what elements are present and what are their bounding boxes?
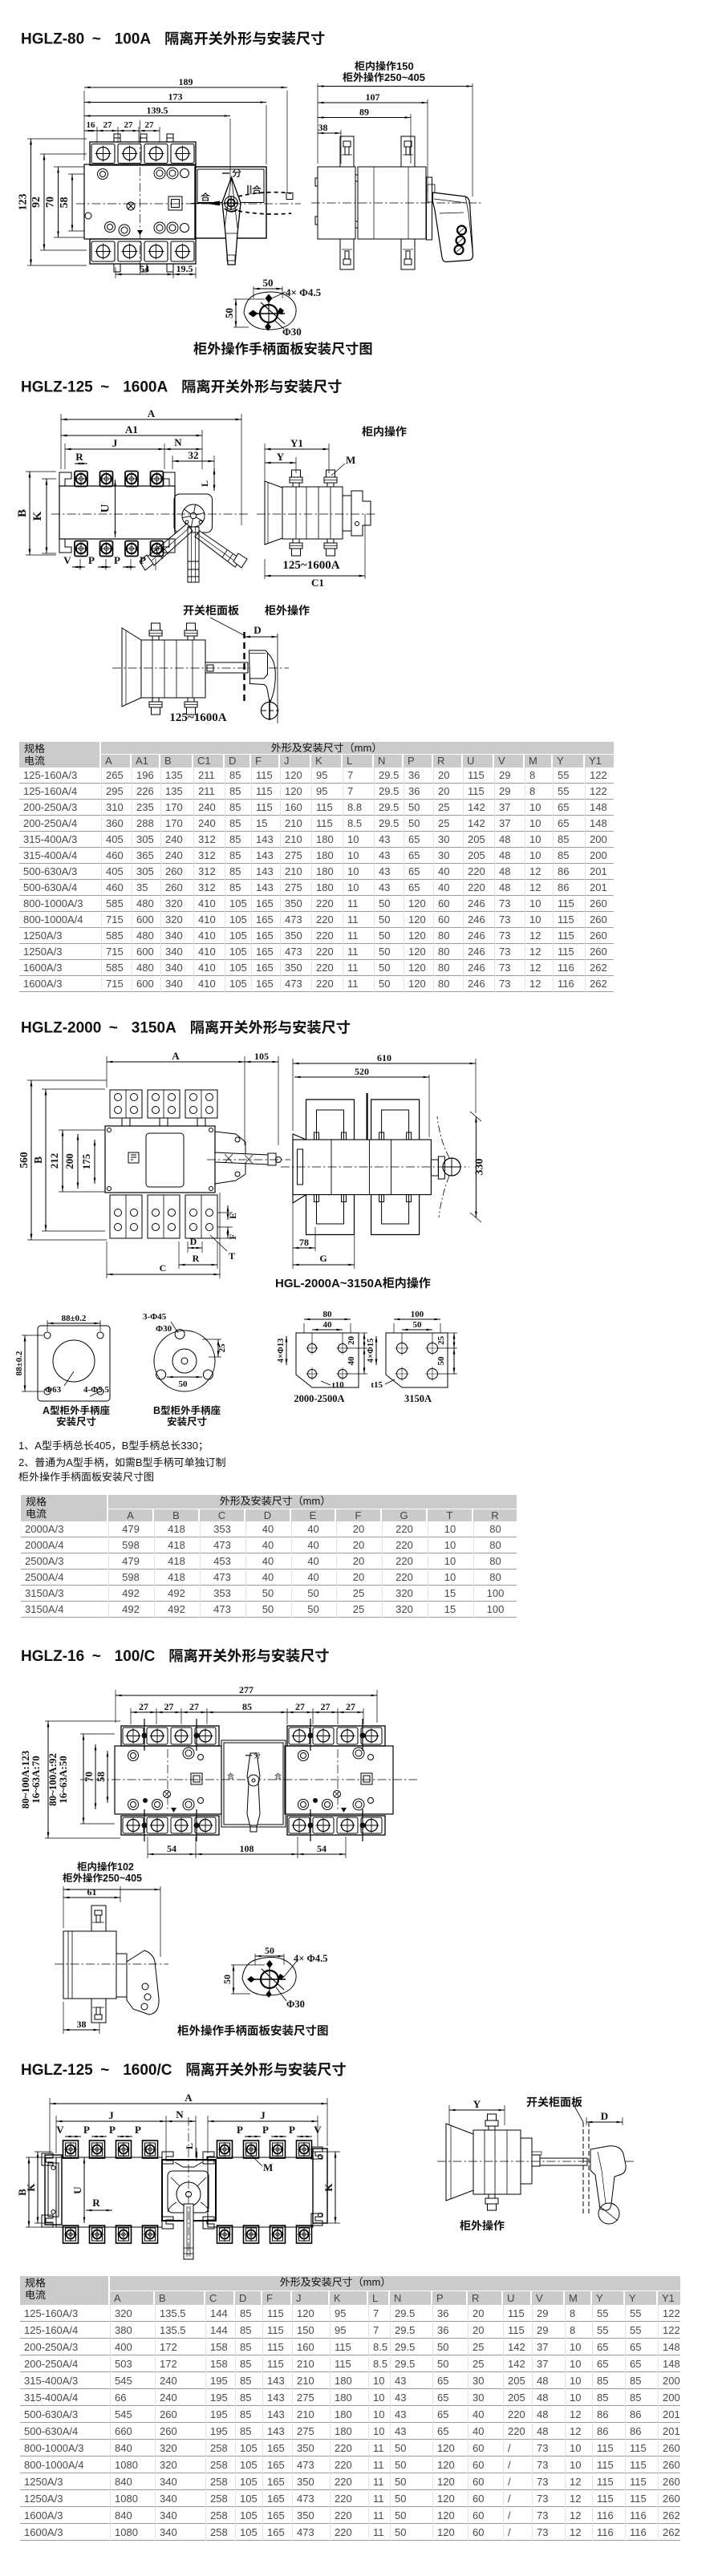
svg-text:~: ~ <box>92 1648 101 1665</box>
svg-text:40: 40 <box>323 1320 333 1330</box>
svg-text:4× Φ4.5: 4× Φ4.5 <box>286 286 322 298</box>
svg-text:M: M <box>263 2161 273 2173</box>
svg-text:P: P <box>114 554 120 566</box>
svg-text:107: 107 <box>366 91 380 103</box>
svg-text:Φ30: Φ30 <box>286 1999 305 2010</box>
svg-text:560: 560 <box>18 1152 30 1169</box>
svg-text:HGLZ-2000: HGLZ-2000 <box>21 1020 101 1037</box>
svg-text:277: 277 <box>239 1684 254 1695</box>
svg-text:78: 78 <box>299 1237 309 1248</box>
svg-text:B: B <box>122 1440 129 1452</box>
svg-text:58: 58 <box>59 197 71 209</box>
svg-text:R: R <box>193 1253 200 1264</box>
svg-text:1: 1 <box>18 1440 24 1452</box>
svg-text:P: P <box>83 2124 90 2136</box>
svg-text:K: K <box>322 2183 335 2192</box>
svg-text:89: 89 <box>359 107 369 118</box>
svg-text:A: A <box>66 1456 73 1468</box>
svg-text:105: 105 <box>254 1051 269 1062</box>
svg-text:mm: mm <box>355 742 372 754</box>
svg-text:19.5: 19.5 <box>176 263 193 274</box>
svg-text:P: P <box>262 2124 269 2136</box>
svg-text:175: 175 <box>80 1153 92 1169</box>
svg-text:Y: Y <box>473 2098 481 2110</box>
svg-text:50: 50 <box>221 1975 233 1984</box>
svg-text:16~63A:70: 16~63A:70 <box>30 1756 42 1803</box>
svg-text:212: 212 <box>48 1153 60 1169</box>
svg-text:D: D <box>190 1236 197 1247</box>
svg-text:200: 200 <box>63 1153 75 1169</box>
svg-text:150: 150 <box>396 60 414 72</box>
svg-text:Φ30: Φ30 <box>282 326 302 338</box>
svg-text:2000-2500A: 2000-2500A <box>294 1393 344 1404</box>
svg-text:50: 50 <box>263 277 274 289</box>
svg-text:J: J <box>108 2109 114 2121</box>
svg-text:32: 32 <box>189 449 199 461</box>
svg-text:HGLZ-16: HGLZ-16 <box>21 1648 84 1665</box>
svg-text:520: 520 <box>355 1066 369 1077</box>
svg-text:125~1600A: 125~1600A <box>169 711 226 724</box>
svg-text:123: 123 <box>18 194 30 211</box>
svg-text:80: 80 <box>323 1310 333 1319</box>
svg-text:50: 50 <box>265 1945 274 1956</box>
svg-text:M: M <box>346 454 355 466</box>
svg-text:Φ30: Φ30 <box>156 1324 172 1334</box>
svg-text:16: 16 <box>87 120 96 130</box>
svg-text:27: 27 <box>189 1701 199 1712</box>
svg-text:3150A: 3150A <box>132 1020 176 1037</box>
svg-text:27: 27 <box>124 120 134 130</box>
svg-text:N: N <box>174 436 182 448</box>
svg-text:R: R <box>75 451 83 463</box>
svg-text:V: V <box>314 2124 322 2136</box>
svg-text:3-Φ45: 3-Φ45 <box>143 1312 167 1322</box>
svg-text:L: L <box>184 2143 195 2149</box>
svg-text:102: 102 <box>117 1861 134 1873</box>
svg-text:16~63A:50: 16~63A:50 <box>57 1756 69 1803</box>
svg-text:250~405: 250~405 <box>384 71 425 83</box>
svg-text:K: K <box>31 511 44 520</box>
svg-text:T: T <box>229 1250 235 1262</box>
svg-text:250~405: 250~405 <box>103 1873 142 1884</box>
svg-text:27: 27 <box>103 120 113 130</box>
svg-text:mm: mm <box>303 1495 321 1507</box>
svg-text:P: P <box>237 2124 243 2136</box>
svg-text:100: 100 <box>411 1310 424 1319</box>
svg-text:E: E <box>227 1213 238 1219</box>
svg-text:1600/C: 1600/C <box>123 2062 172 2079</box>
svg-text:P: P <box>88 554 95 566</box>
svg-text:L: L <box>199 480 210 487</box>
svg-text:P: P <box>109 2124 116 2136</box>
svg-text:25: 25 <box>436 1336 446 1346</box>
svg-text:139.5: 139.5 <box>147 105 168 116</box>
svg-text:~: ~ <box>100 2062 109 2079</box>
svg-text:4-Φ5.5: 4-Φ5.5 <box>83 1385 110 1395</box>
svg-text:P: P <box>289 2124 295 2136</box>
svg-text:t15: t15 <box>371 1380 383 1390</box>
svg-text:Y1: Y1 <box>290 437 303 449</box>
svg-text:50: 50 <box>223 308 235 318</box>
svg-text:2: 2 <box>18 1456 24 1468</box>
svg-text:27: 27 <box>164 1701 174 1712</box>
svg-text:A: A <box>43 1405 50 1416</box>
svg-text:88±0.2: 88±0.2 <box>14 1351 24 1375</box>
svg-text:G: G <box>319 1253 327 1264</box>
svg-text:189: 189 <box>179 76 193 87</box>
svg-text:173: 173 <box>168 91 183 103</box>
svg-text:R: R <box>92 2197 100 2209</box>
svg-text:B: B <box>16 509 29 517</box>
svg-text:~: ~ <box>92 31 101 48</box>
svg-text:B: B <box>32 1156 44 1164</box>
svg-text:88±0.2: 88±0.2 <box>62 1314 87 1323</box>
svg-text:~: ~ <box>100 379 109 396</box>
svg-text:U: U <box>99 504 112 512</box>
svg-text:54: 54 <box>167 1843 176 1854</box>
svg-text:A: A <box>185 2092 193 2104</box>
svg-text:40: 40 <box>347 1356 356 1366</box>
svg-text:4×Φ15: 4×Φ15 <box>367 1339 375 1363</box>
svg-text:330: 330 <box>180 1440 198 1452</box>
svg-text:D: D <box>601 2110 608 2122</box>
svg-text:C1: C1 <box>311 577 324 589</box>
svg-text:D: D <box>254 624 261 636</box>
svg-text:3150A: 3150A <box>404 1393 432 1404</box>
svg-text:J: J <box>260 2109 266 2121</box>
svg-text:Φ63: Φ63 <box>45 1385 62 1395</box>
svg-text:27: 27 <box>295 1701 305 1712</box>
svg-text:B: B <box>136 1456 143 1468</box>
svg-text:N: N <box>176 2108 184 2120</box>
svg-text:4×Φ13: 4×Φ13 <box>277 1339 286 1363</box>
svg-text:V: V <box>56 2124 64 2136</box>
svg-text:85: 85 <box>242 1701 252 1712</box>
svg-text:P: P <box>140 554 146 566</box>
svg-text:50: 50 <box>413 1320 423 1330</box>
svg-text:58: 58 <box>95 1772 107 1783</box>
svg-text:mm: mm <box>363 2276 381 2288</box>
svg-text:t10: t10 <box>332 1380 344 1390</box>
svg-text:50: 50 <box>436 1356 446 1366</box>
svg-text:27: 27 <box>145 120 155 130</box>
svg-text:J: J <box>112 437 118 449</box>
svg-text:A1: A1 <box>125 423 138 435</box>
svg-text:108: 108 <box>240 1843 254 1854</box>
svg-text:27: 27 <box>346 1701 355 1712</box>
svg-text:~: ~ <box>109 1020 118 1037</box>
svg-text:4× Φ4.5: 4× Φ4.5 <box>294 1953 328 1964</box>
svg-text:P: P <box>135 2124 141 2136</box>
svg-text:610: 610 <box>377 1052 391 1063</box>
svg-text:K: K <box>25 2183 37 2192</box>
svg-text:38: 38 <box>77 2019 87 2030</box>
svg-text:HGLZ-80: HGLZ-80 <box>21 31 84 48</box>
svg-text:27: 27 <box>321 1701 331 1712</box>
svg-text:HGL-2000A~3150A: HGL-2000A~3150A <box>275 1277 383 1290</box>
svg-text:54: 54 <box>317 1843 327 1854</box>
svg-text:F: F <box>227 1233 238 1239</box>
svg-text:54: 54 <box>140 263 149 274</box>
svg-text:V: V <box>63 554 71 566</box>
svg-text:61: 61 <box>87 1886 97 1898</box>
svg-text:U: U <box>71 2186 83 2194</box>
svg-text:B: B <box>153 1405 160 1416</box>
svg-text:A: A <box>34 1440 42 1452</box>
svg-text:405: 405 <box>94 1440 112 1452</box>
svg-text:C: C <box>160 1262 167 1274</box>
svg-text:100A: 100A <box>115 31 152 48</box>
svg-text:HGLZ-125: HGLZ-125 <box>21 379 93 396</box>
svg-text:1600A: 1600A <box>123 379 168 396</box>
svg-text:50: 50 <box>179 1379 189 1389</box>
svg-text:25: 25 <box>217 1343 227 1353</box>
svg-text:Y: Y <box>277 451 285 463</box>
svg-text:92: 92 <box>30 196 43 208</box>
svg-text:125~1600A: 125~1600A <box>282 559 339 572</box>
svg-text:100/C: 100/C <box>115 1648 156 1665</box>
svg-text:27: 27 <box>139 1701 148 1712</box>
svg-text:70: 70 <box>45 196 57 208</box>
svg-text:A: A <box>172 1050 180 1062</box>
svg-text:330: 330 <box>473 1159 485 1176</box>
svg-text:38: 38 <box>318 122 328 133</box>
svg-text:20: 20 <box>347 1336 356 1346</box>
svg-text:70: 70 <box>83 1772 95 1782</box>
svg-text:HGLZ-125: HGLZ-125 <box>21 2062 93 2079</box>
svg-text:A: A <box>148 407 156 419</box>
